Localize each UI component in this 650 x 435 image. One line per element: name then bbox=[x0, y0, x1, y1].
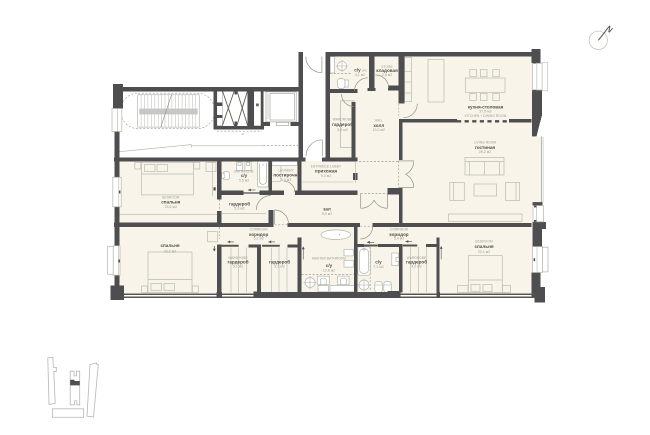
svg-text:5,5 м2: 5,5 м2 bbox=[239, 179, 249, 183]
svg-text:5,3 м2: 5,3 м2 bbox=[337, 128, 347, 132]
svg-text:5,2 м2: 5,2 м2 bbox=[253, 236, 263, 240]
svg-text:WARDROBE: WARDROBE bbox=[333, 117, 352, 121]
svg-text:MASTER BATHROOM: MASTER BATHROOM bbox=[312, 256, 346, 260]
svg-text:37,9 м2: 37,9 м2 bbox=[479, 110, 491, 114]
svg-text:3,5 м2: 3,5 м2 bbox=[281, 178, 291, 182]
svg-text:KITCHEN + DINING ROOM: KITCHEN + DINING ROOM bbox=[465, 114, 507, 118]
svg-text:зал: зал bbox=[323, 206, 331, 211]
svg-text:5,3 м2: 5,3 м2 bbox=[274, 264, 284, 268]
svg-text:23,2 м2: 23,2 м2 bbox=[164, 249, 176, 253]
svg-text:спальня: спальня bbox=[161, 199, 180, 204]
svg-text:4,2 м2: 4,2 м2 bbox=[411, 264, 421, 268]
svg-text:постирочн.: постирочн. bbox=[273, 173, 298, 178]
svg-text:с/у: с/у bbox=[354, 68, 361, 73]
svg-text:39,2 м2: 39,2 м2 bbox=[479, 150, 491, 154]
svg-text:5,4 м2: 5,4 м2 bbox=[394, 236, 404, 240]
svg-text:спальня: спальня bbox=[160, 243, 179, 248]
svg-text:с/у: с/у bbox=[375, 260, 382, 265]
svg-text:4,1 м2: 4,1 м2 bbox=[355, 73, 365, 77]
svg-text:гардероб: гардероб bbox=[332, 121, 353, 127]
svg-text:12,6 м2: 12,6 м2 bbox=[323, 269, 335, 273]
svg-text:9,3 м2: 9,3 м2 bbox=[321, 174, 331, 178]
svg-text:13,0 м2: 13,0 м2 bbox=[373, 128, 385, 132]
svg-text:5,3 м2: 5,3 м2 bbox=[234, 207, 244, 211]
svg-text:с/у: с/у bbox=[241, 173, 248, 178]
svg-text:23,6 м2: 23,6 м2 bbox=[165, 205, 177, 209]
svg-text:с/у: с/у bbox=[326, 263, 333, 268]
svg-text:22,1 м2: 22,1 м2 bbox=[478, 250, 490, 254]
svg-text:9,0 м2: 9,0 м2 bbox=[322, 212, 332, 216]
svg-text:5,1 м2: 5,1 м2 bbox=[233, 264, 243, 268]
svg-text:2,8 м2: 2,8 м2 bbox=[382, 73, 392, 77]
svg-text:спальня: спальня bbox=[474, 244, 493, 249]
svg-text:-8: -8 bbox=[241, 132, 244, 136]
svg-text:гардероб: гардероб bbox=[229, 200, 250, 206]
svg-text:7,1 м2: 7,1 м2 bbox=[373, 265, 383, 269]
svg-text:BEDROOM: BEDROOM bbox=[475, 239, 492, 243]
svg-text:прихожая: прихожая bbox=[315, 168, 337, 173]
